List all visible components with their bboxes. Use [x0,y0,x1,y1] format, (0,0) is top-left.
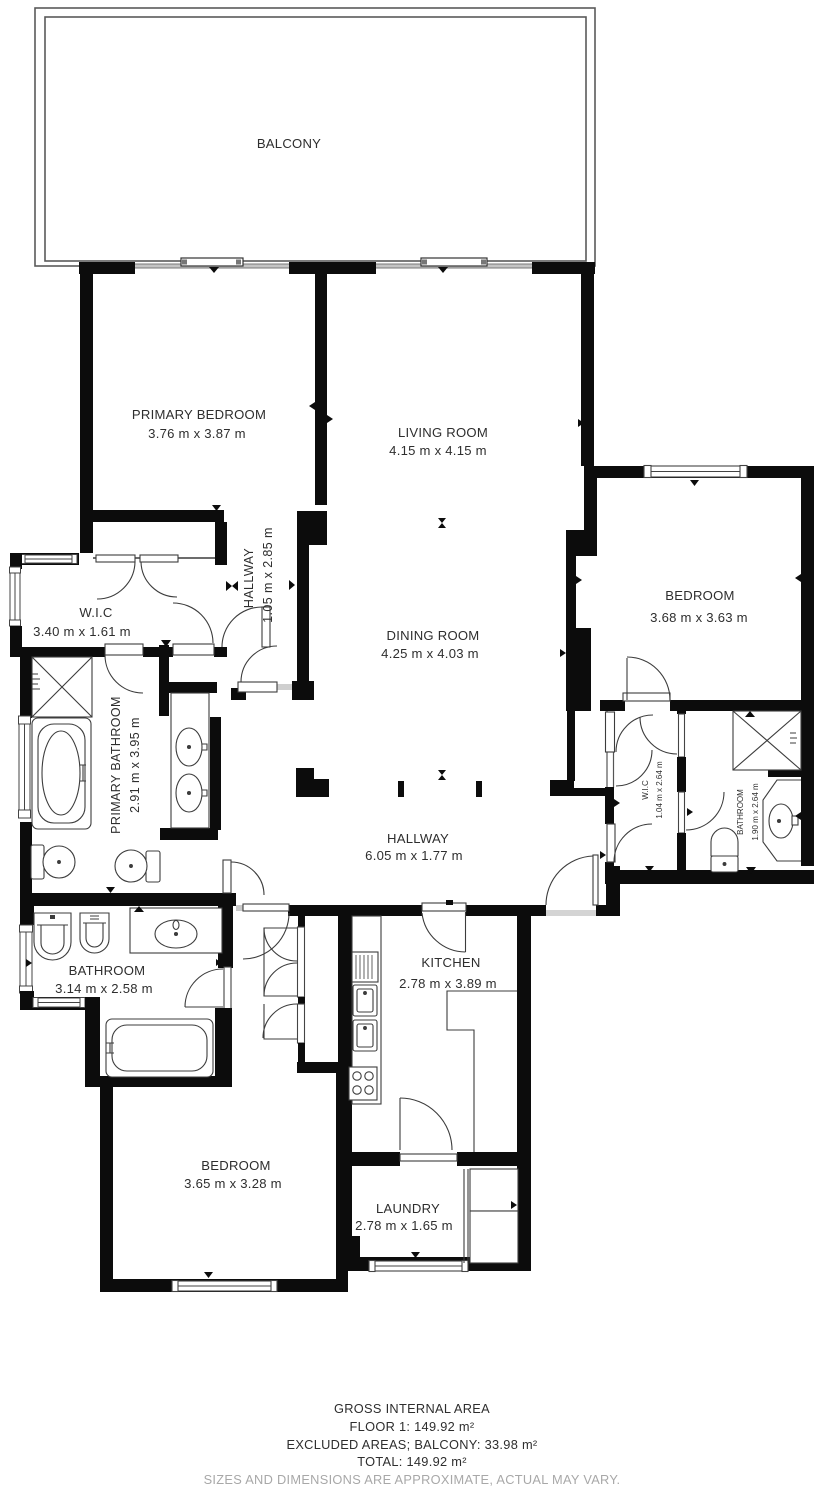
svg-text:LIVING ROOM: LIVING ROOM [398,425,488,440]
svg-text:BEDROOM: BEDROOM [201,1158,270,1173]
svg-text:W.I.C: W.I.C [641,780,650,800]
svg-text:2.91 m x 3.95 m: 2.91 m x 3.95 m [128,717,142,813]
svg-text:3.68 m x 3.63 m: 3.68 m x 3.63 m [650,610,748,625]
svg-text:2.78 m x 1.65 m: 2.78 m x 1.65 m [355,1218,453,1233]
svg-text:BATHROOM: BATHROOM [736,789,745,835]
svg-text:HALLWAY: HALLWAY [387,831,449,846]
svg-text:1.04 m x 2.64 m: 1.04 m x 2.64 m [655,761,664,819]
svg-text:3.14 m x 2.58 m: 3.14 m x 2.58 m [55,981,153,996]
svg-text:SIZES AND DIMENSIONS ARE APPRO: SIZES AND DIMENSIONS ARE APPROXIMATE, AC… [204,1472,621,1487]
svg-text:LAUNDRY: LAUNDRY [376,1201,440,1216]
svg-text:GROSS INTERNAL AREA: GROSS INTERNAL AREA [334,1401,490,1416]
svg-text:1.90 m x 2.64 m: 1.90 m x 2.64 m [751,783,760,841]
svg-text:6.05 m x 1.77 m: 6.05 m x 1.77 m [365,848,463,863]
svg-text:BEDROOM: BEDROOM [665,588,734,603]
svg-text:3.40 m x 1.61 m: 3.40 m x 1.61 m [33,624,131,639]
svg-text:W.I.C: W.I.C [79,605,112,620]
svg-text:4.25 m x 4.03 m: 4.25 m x 4.03 m [381,646,479,661]
svg-text:2.78 m x 3.89 m: 2.78 m x 3.89 m [399,976,497,991]
svg-text:HALLWAY: HALLWAY [242,548,256,608]
svg-text:BATHROOM: BATHROOM [69,963,146,978]
svg-text:3.65 m x 3.28 m: 3.65 m x 3.28 m [184,1176,282,1191]
svg-text:1.05 m x 2.85 m: 1.05 m x 2.85 m [261,527,275,623]
svg-text:PRIMARY BATHROOM: PRIMARY BATHROOM [109,696,123,834]
svg-text:EXCLUDED AREAS; BALCONY: 33.98: EXCLUDED AREAS; BALCONY: 33.98 m² [287,1437,538,1452]
svg-text:PRIMARY BEDROOM: PRIMARY BEDROOM [132,407,266,422]
svg-text:TOTAL: 149.92 m²: TOTAL: 149.92 m² [357,1454,467,1469]
svg-text:4.15 m x 4.15 m: 4.15 m x 4.15 m [389,443,487,458]
svg-text:DINING ROOM: DINING ROOM [387,628,480,643]
svg-text:KITCHEN: KITCHEN [421,955,480,970]
svg-text:FLOOR 1: 149.92 m²: FLOOR 1: 149.92 m² [350,1419,475,1434]
svg-text:3.76 m x 3.87 m: 3.76 m x 3.87 m [148,426,246,441]
svg-text:BALCONY: BALCONY [257,136,321,151]
